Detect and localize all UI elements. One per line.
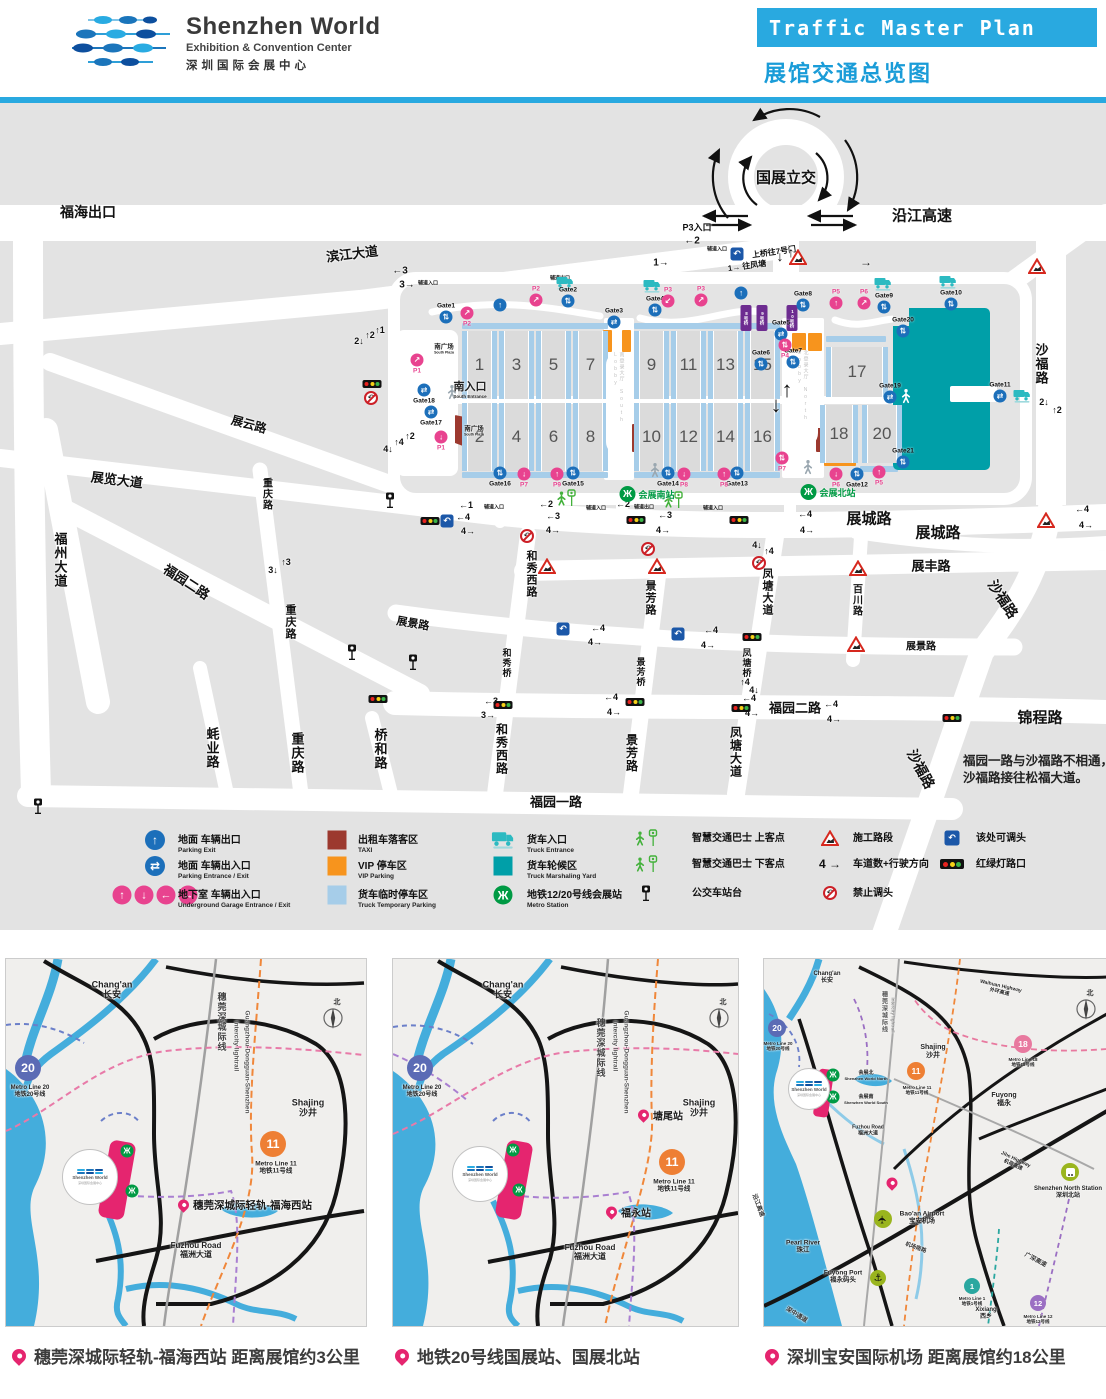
gate-label-Gate14: Gate14 (657, 481, 679, 488)
shuttle-bridge-8号桥: 8号桥 (741, 305, 752, 331)
parking-icon: ↓ (435, 431, 448, 444)
traffic-light-icon (626, 698, 645, 706)
smart-bus-icon (635, 855, 658, 873)
map-label: ↑1 (375, 325, 385, 335)
legend-text: 公交车站台 (692, 884, 742, 899)
legend-color-square (328, 831, 347, 850)
hall-8: 8 (573, 403, 608, 471)
gate-label-Gate15: Gate15 (562, 481, 584, 488)
construction-icon (1037, 512, 1055, 528)
parking-P7: ↓ (518, 468, 531, 481)
gate-label-Gate6: Gate6 (752, 350, 770, 357)
map-label: ←4 (1075, 504, 1089, 514)
metro-line-badge-20: 20 (407, 1055, 433, 1081)
parking-P6: ↗ (858, 297, 871, 310)
legend-color-square (328, 857, 347, 876)
hall-number: 10 (642, 427, 661, 447)
map-note: 福园一路与沙福路不相通，沙福路接往松福大道。 (963, 753, 1106, 787)
legend-text: 施工路段 (853, 829, 893, 844)
gate-label-Gate5: Gate5 (772, 320, 790, 327)
gate-icon: ↑ (494, 299, 507, 312)
traffic-light-icon (421, 517, 440, 525)
traffic-light-icon (743, 633, 762, 641)
parking-label-P6: P6 (860, 289, 868, 296)
gate-label-Gate20: Gate20 (892, 317, 914, 324)
legend-text: 智慧交通巴士 上客点 (692, 829, 785, 844)
svg-text:北: 北 (334, 997, 341, 1006)
truck-icon (643, 279, 662, 293)
gate-label-Gate17: Gate17 (420, 420, 442, 427)
shenzhen-world-logo-badge: Shenzhen World深圳国际会展中心 (452, 1146, 508, 1202)
gate-icon: ⇅ (878, 301, 891, 314)
minimap-airport (763, 958, 1106, 1327)
parking-icon: ↗ (461, 307, 474, 320)
gate-label-Gate2: Gate2 (559, 287, 577, 294)
map-label: 辅道入口 (484, 504, 504, 511)
map-label-2line: Chang'an长安 (813, 971, 840, 985)
station-pin-福永站: 福永站 (606, 1205, 651, 1220)
lane-count-icon: 4 → (819, 857, 841, 871)
map-label: 4→ (656, 525, 670, 535)
map-label-2line: Shenzhen North Station深圳北站 (1034, 1186, 1102, 1200)
parking-P9: ↑ (551, 468, 564, 481)
metro-line-badge-18: 18 (1014, 1035, 1032, 1053)
gate-label-Gate1: Gate1 (437, 303, 455, 310)
map-label-2line: Fuzhou Road福洲大道 (852, 1125, 884, 1137)
map-label-2line: Metro Line 20地铁20号线 (11, 1085, 50, 1099)
metro-line-badge-11: 11 (907, 1062, 925, 1080)
hall-14: 14 (708, 403, 743, 471)
map-label: 重庆路 (288, 732, 307, 774)
station-pin-塘尾站: 塘尾站 (638, 1108, 683, 1123)
gate-Gate13: ⇅ (731, 467, 744, 480)
bus-stop-icon (641, 885, 651, 902)
map-label-2line: Fuzhou Road福洲大道 (171, 1241, 222, 1259)
map-label: 景芳路 (642, 580, 658, 616)
metro-station-icon: Ж (494, 886, 513, 905)
map-label: 穗莞深城际线 (595, 1018, 608, 1078)
smart-bus-icon (635, 829, 658, 847)
no-uturn-icon: ↶ (823, 886, 837, 900)
gate-icon: ⇅ (649, 304, 662, 317)
map-label-2line: Metro Line 11地铁11号线 (255, 1161, 297, 1176)
train-station-icon (1061, 1163, 1079, 1181)
map-label: 国展立交 (756, 167, 816, 188)
map-label: 4↓ (749, 685, 759, 695)
traffic-light-icon (627, 516, 646, 524)
minimap-caption-1: 穗莞深城际轻轨-福海西站 距离展馆约3公里 (12, 1343, 360, 1368)
hall-number: 16 (753, 427, 772, 447)
hall-number: 8 (586, 427, 595, 447)
map-label-2line: Shajing沙井 (920, 1044, 945, 1060)
map-label: 展景路 (906, 638, 936, 653)
bus-stop-icon (385, 492, 395, 509)
hall-number: 17 (848, 362, 867, 382)
parking-P8: ↑ (718, 468, 731, 481)
map-label: 福海出口 (60, 202, 116, 222)
metro-line-badge-1: 1 (964, 1278, 980, 1294)
gate-icon: ⇄ (884, 391, 897, 404)
construction-icon (538, 558, 556, 574)
vip-parking-strip (622, 330, 631, 352)
map-label: ↑2 (405, 431, 415, 441)
map-label: ←4 (604, 692, 618, 702)
map-label: 穗莞深城际线 (216, 992, 229, 1052)
metro-logo-icon: Ж (507, 1144, 520, 1157)
minimap-caption-2: 地铁20号线国展站、国展北站 (395, 1343, 640, 1368)
svg-text:北: 北 (1087, 988, 1094, 997)
map-label: ←4 (824, 699, 838, 709)
parking-label-P5: P5 (832, 289, 840, 296)
map-label: Intercity lightrail (612, 1021, 619, 1072)
hall-number: 1 (475, 355, 484, 375)
legend-color-square (494, 857, 513, 876)
parking-label-P7: P7 (778, 466, 786, 473)
truck-entrance-icon (494, 833, 513, 847)
map-label-2line: Xixiang西乡 (975, 1307, 996, 1321)
map-label: 穗莞深城际线 (880, 991, 889, 1033)
legend-text: 地面 车辆出口Parking Exit (178, 831, 241, 854)
gate-icon: ⇅ (797, 299, 810, 312)
map-label: ←4 (798, 509, 812, 519)
map-label: 福州大道 (51, 532, 70, 588)
map-label: ←3 (658, 510, 672, 520)
map-label: 辅道入口 (703, 505, 723, 512)
hall-number: 14 (716, 427, 735, 447)
map-label: 凤塘桥 (741, 648, 754, 678)
uturn-allowed-icon: ↶ (557, 623, 570, 636)
gate-label-Gate21: Gate21 (892, 448, 914, 455)
legend-text: 货车临时停车区Truck Temporary Parking (358, 886, 436, 909)
metro-logo-icon: Ж (513, 1184, 526, 1197)
gate-Gate16: ⇅ (494, 467, 507, 480)
map-label: 蚝业路 (203, 727, 222, 769)
map-label-2line: Fuyong福永 (991, 1092, 1016, 1108)
parking-label-P8: P8 (720, 482, 728, 489)
legend-color-square (328, 886, 347, 905)
map-label-2line: Fuzhou Road福洲大道 (565, 1243, 616, 1261)
map-label: 重庆路 (282, 604, 298, 640)
map-label: 福园一路 (530, 792, 582, 811)
map-label-2line: 会展南Shenzhen World South (844, 1095, 888, 1105)
hall-9: 9 (634, 331, 669, 399)
map-label: 和秀西路 (494, 723, 511, 775)
traffic-light-icon (363, 380, 382, 388)
metro-logo-icon: Ж (827, 1069, 840, 1082)
gate-icon: ⇅ (494, 467, 507, 480)
metro-line-badge-20: 20 (15, 1055, 41, 1081)
metro-line-badge-12: 12 (1030, 1295, 1046, 1311)
gate-label-Gate16: Gate16 (489, 481, 511, 488)
truck-temp-parking-strip (826, 336, 886, 342)
gate-Gate8: ⇅ (797, 299, 810, 312)
map-label: Guangzhou-Dongguan-Shenzhen (244, 1011, 251, 1114)
hall-number: 20 (873, 424, 892, 444)
gate-exit: ↑ (494, 299, 507, 312)
traffic-light-icon (730, 516, 749, 524)
map-label: 凤塘大道 (728, 726, 745, 778)
map-label: 百川路 (849, 584, 864, 617)
map-label: 4→ (800, 525, 814, 535)
parking-icon: ↓ (830, 468, 843, 481)
metro-line-badge-11: 11 (659, 1149, 685, 1175)
gate-label-Gate10: Gate10 (940, 290, 962, 297)
minimap-metro-line20 (392, 958, 739, 1327)
map-label: ←2 (684, 236, 700, 247)
gate-icon: ⇅ (945, 298, 958, 311)
smart-bus-stop-icon (556, 489, 576, 507)
caption-pin-icon (762, 1346, 782, 1366)
map-label: 4→ (546, 525, 560, 535)
map-label: 展丰路 (911, 556, 950, 575)
construction-icon (821, 830, 839, 846)
compass-icon: 北 (706, 996, 732, 1032)
pedestrian-icon (901, 389, 912, 404)
bus-stop-icon (347, 644, 357, 661)
map-label: ←3 (392, 266, 408, 277)
gate-icon: ↑ (735, 287, 748, 300)
gate-label-Gate11: Gate11 (989, 382, 1010, 389)
shenzhen-world-logo-badge: Shenzhen World深圳国际会展中心 (62, 1149, 118, 1205)
gate-icon: ⇅ (662, 467, 675, 480)
map-label: 4→ (1079, 520, 1093, 530)
metro-line-badge-20: 20 (768, 1019, 786, 1037)
parking-P5: ↑ (830, 297, 843, 310)
map-label: 4↓ (383, 444, 393, 454)
pedestrian-icon (650, 463, 661, 478)
map-label: 2↓ (1039, 397, 1049, 407)
pedestrian-icon (803, 460, 814, 475)
gate-Gate2: ⇅ (562, 295, 575, 308)
hall-5: 5 (536, 331, 571, 399)
metro-station-会展南站: Ж会展南站 (619, 486, 674, 502)
uturn-allowed-icon: ↶ (731, 248, 744, 261)
hall-10: 10 (634, 403, 669, 471)
parking-icon: ↙ (662, 295, 675, 308)
gate-Gate14: ⇅ (662, 467, 675, 480)
no-uturn-icon: ↶ (752, 556, 766, 570)
map-label-2line: Metro Line 11地铁11号线 (653, 1179, 695, 1194)
hall-11: 11 (671, 331, 706, 399)
parking-label-P2: P2 (532, 286, 540, 293)
traffic-light-icon (943, 714, 962, 722)
construction-icon (789, 249, 807, 265)
hall-number: 4 (512, 427, 521, 447)
construction-icon (849, 560, 867, 576)
parking-P1: ↓ (435, 431, 448, 444)
gate-Gate4: ⇅ (649, 304, 662, 317)
parking-label-P1: P1 (437, 445, 445, 452)
gate-icon: ⇅ (851, 468, 864, 481)
parking-label-P8: P8 (680, 482, 688, 489)
map-label-2line: 南广场South Plaza (464, 425, 484, 436)
map-label: 2↓ (354, 336, 364, 346)
hall-number: 3 (512, 355, 521, 375)
lobby: 南登录大厅 South Lobby (606, 352, 632, 455)
map-pin-icon (887, 1178, 898, 1189)
parking-icon: ↑ (551, 468, 564, 481)
map-label: ↓ (771, 392, 782, 418)
station-pin-穗莞深城际轻轨-福海西站: 穗莞深城际轻轨-福海西站 (178, 1198, 312, 1213)
truck-icon (874, 277, 893, 291)
construction-icon (1028, 258, 1046, 274)
parking-P2: ↗ (530, 294, 543, 307)
legend-text: 禁止调头 (853, 884, 893, 899)
compass-icon: 北 (320, 996, 346, 1032)
map-label: ←1 (459, 500, 473, 510)
gate-Gate18: ⇄ (418, 384, 431, 397)
hall-17: 17 (826, 347, 888, 397)
gate-icon: ⇄ (994, 390, 1007, 403)
traffic-light-icon (369, 695, 388, 703)
gate-Gate6: ⇅ (755, 358, 768, 371)
parking-exit-icon: ↑ (145, 830, 165, 850)
legend-text: 地铁12/20号线会展站Metro Station (527, 886, 622, 909)
map-label-2line: Metro Line 20地铁20号线 (763, 1041, 792, 1051)
map-label: P3入口 (682, 221, 711, 234)
hall-number: 12 (679, 427, 698, 447)
vip-parking-strip (808, 333, 822, 351)
parking-P8: ↓ (678, 468, 691, 481)
minimap-caption-3: 深圳宝安国际机场 距离展馆约18公里 (765, 1343, 1066, 1368)
hall-18: 18 (820, 405, 858, 463)
gate-icon: ⇄ (608, 316, 621, 329)
metro-logo-icon: Ж (619, 486, 635, 502)
map-label: 4→ (827, 714, 841, 724)
metro-logo-icon: Ж (126, 1185, 139, 1198)
map-label-2line: Bao'an Airport宝安机场 (900, 1211, 945, 1226)
traffic-light-icon (494, 701, 513, 709)
parking-P1: ↗ (411, 354, 424, 367)
legend-text: 货车轮候区Truck Marshaling Yard (527, 857, 596, 880)
gate-Gate20: ⇅ (897, 325, 910, 338)
shuttle-bridge-9号桥: 9号桥 (757, 305, 768, 331)
gate-label-Gate9: Gate9 (875, 293, 893, 300)
hall-7: 7 (573, 331, 608, 399)
hall-4: 4 (499, 403, 534, 471)
parking-icon: ↗ (411, 354, 424, 367)
gate-Gate21: ⇅ (897, 456, 910, 469)
map-label: Guangzhou-Dongguan-Shenzhen (623, 1011, 630, 1114)
hall-6: 6 (536, 403, 571, 471)
map-label: ↑ (782, 377, 793, 403)
hall-number: 7 (586, 355, 595, 375)
gate-icon: ⇅ (755, 358, 768, 371)
map-label: 沿江高速 (892, 205, 952, 226)
map-label: 3→ (399, 280, 415, 291)
hall-3: 3 (499, 331, 534, 399)
map-label-2line: Shajing沙井 (292, 1098, 325, 1119)
map-label: 桥和路 (371, 728, 390, 770)
hall-12: 12 (671, 403, 706, 471)
parking-icon: ↓ (518, 468, 531, 481)
parking-icon: ⇅ (776, 452, 789, 465)
legend-text: 该处可调头 (976, 829, 1026, 844)
construction-icon (847, 636, 865, 652)
gate-icon: ⇅ (731, 467, 744, 480)
map-label: Intercity lightrail (233, 1021, 240, 1072)
parking-P7: ⇅ (776, 452, 789, 465)
parking-P2: ↗ (461, 307, 474, 320)
parking-icon: ⇅ (779, 339, 792, 352)
map-label: ↑2 (1052, 405, 1062, 415)
map-label: ←4 (456, 512, 470, 522)
legend-text: 智慧交通巴士 下客点 (692, 855, 785, 870)
gate-icon: ⇄ (425, 406, 438, 419)
parking-label-P3: P3 (664, 287, 672, 294)
map-label-2line: 南广场South Plaza (434, 343, 454, 354)
uturn-allowed-icon: ↶ (441, 515, 454, 528)
traffic-master-plan-page: { "header":{ "brand_title":"Shenzhen Wor… (0, 0, 1106, 1399)
map-label: 沙福路 (1032, 343, 1051, 385)
lobby-label: 南登录大厅 South Lobby (613, 352, 626, 455)
parking-icon: ↑ (873, 466, 886, 479)
gate-Gate3: ⇄ (608, 316, 621, 329)
gate-label-Gate8: Gate8 (794, 291, 812, 298)
map-label: 锦程路 (1017, 707, 1062, 728)
minimap-intercity-rail (5, 958, 367, 1327)
parking-P6: ↓ (830, 468, 843, 481)
map-label: 4↓ (752, 540, 762, 550)
map-label: 景芳桥 (635, 657, 648, 687)
legend-text: 车道数+行驶方向 (853, 855, 929, 870)
parking-icon: ↑ (830, 297, 843, 310)
gate-Gate10: ⇅ (945, 298, 958, 311)
map-label: 福园二路 (769, 698, 821, 717)
map-label: 辅道入口 (707, 246, 727, 253)
map-label-2line: Chang'an长安 (483, 980, 524, 1001)
caption-pin-icon (392, 1346, 412, 1366)
hall-number: 9 (647, 355, 656, 375)
truck-icon (939, 275, 958, 289)
map-label: 4→ (607, 707, 621, 717)
no-uturn-icon: ↶ (641, 542, 655, 556)
parking-icon: ↓ (678, 468, 691, 481)
gate-Gate12: ⇅ (851, 468, 864, 481)
parking-label-P2: P2 (463, 321, 471, 328)
map-label: 1→ (653, 258, 669, 269)
parking-P5: ↑ (873, 466, 886, 479)
gate-Gate9: ⇅ (878, 301, 891, 314)
gate-icon: ⇄ (418, 384, 431, 397)
map-label: 景芳路 (624, 734, 641, 773)
metro-logo-icon: Ж (121, 1145, 134, 1158)
truck-icon (1013, 389, 1032, 403)
map-label: 和秀桥 (501, 648, 514, 678)
map-label-2line: Chang'an长安 (92, 980, 133, 1001)
map-label: ←4 (591, 623, 605, 633)
parking-P3: ↗ (695, 294, 708, 307)
parking-icon: ↗ (858, 297, 871, 310)
parking-label-P1: P1 (413, 368, 421, 375)
bus-stop-icon (408, 654, 418, 671)
gate-exit: ↑ (735, 287, 748, 300)
map-label: 辅道出口 (634, 504, 654, 511)
metro-logo-icon: Ж (800, 484, 816, 500)
map-label: ↑4 (394, 437, 404, 447)
parking-label-P3: P3 (697, 286, 705, 293)
map-label: ↑3 (281, 557, 291, 567)
gate-label-Gate12: Gate12 (846, 482, 868, 489)
map-label: 重庆路 (259, 478, 274, 511)
hall-13: 13 (708, 331, 743, 399)
legend-text: 货车入口Truck Entrance (527, 831, 574, 854)
map-label: 辅道入口 (586, 505, 606, 512)
hall-number: 6 (549, 427, 558, 447)
gate-label-Gate18: Gate18 (413, 398, 435, 405)
map-label-2line: Metro Line 12地铁12号线 (1023, 1314, 1052, 1324)
map-label: 4→ (461, 526, 475, 536)
